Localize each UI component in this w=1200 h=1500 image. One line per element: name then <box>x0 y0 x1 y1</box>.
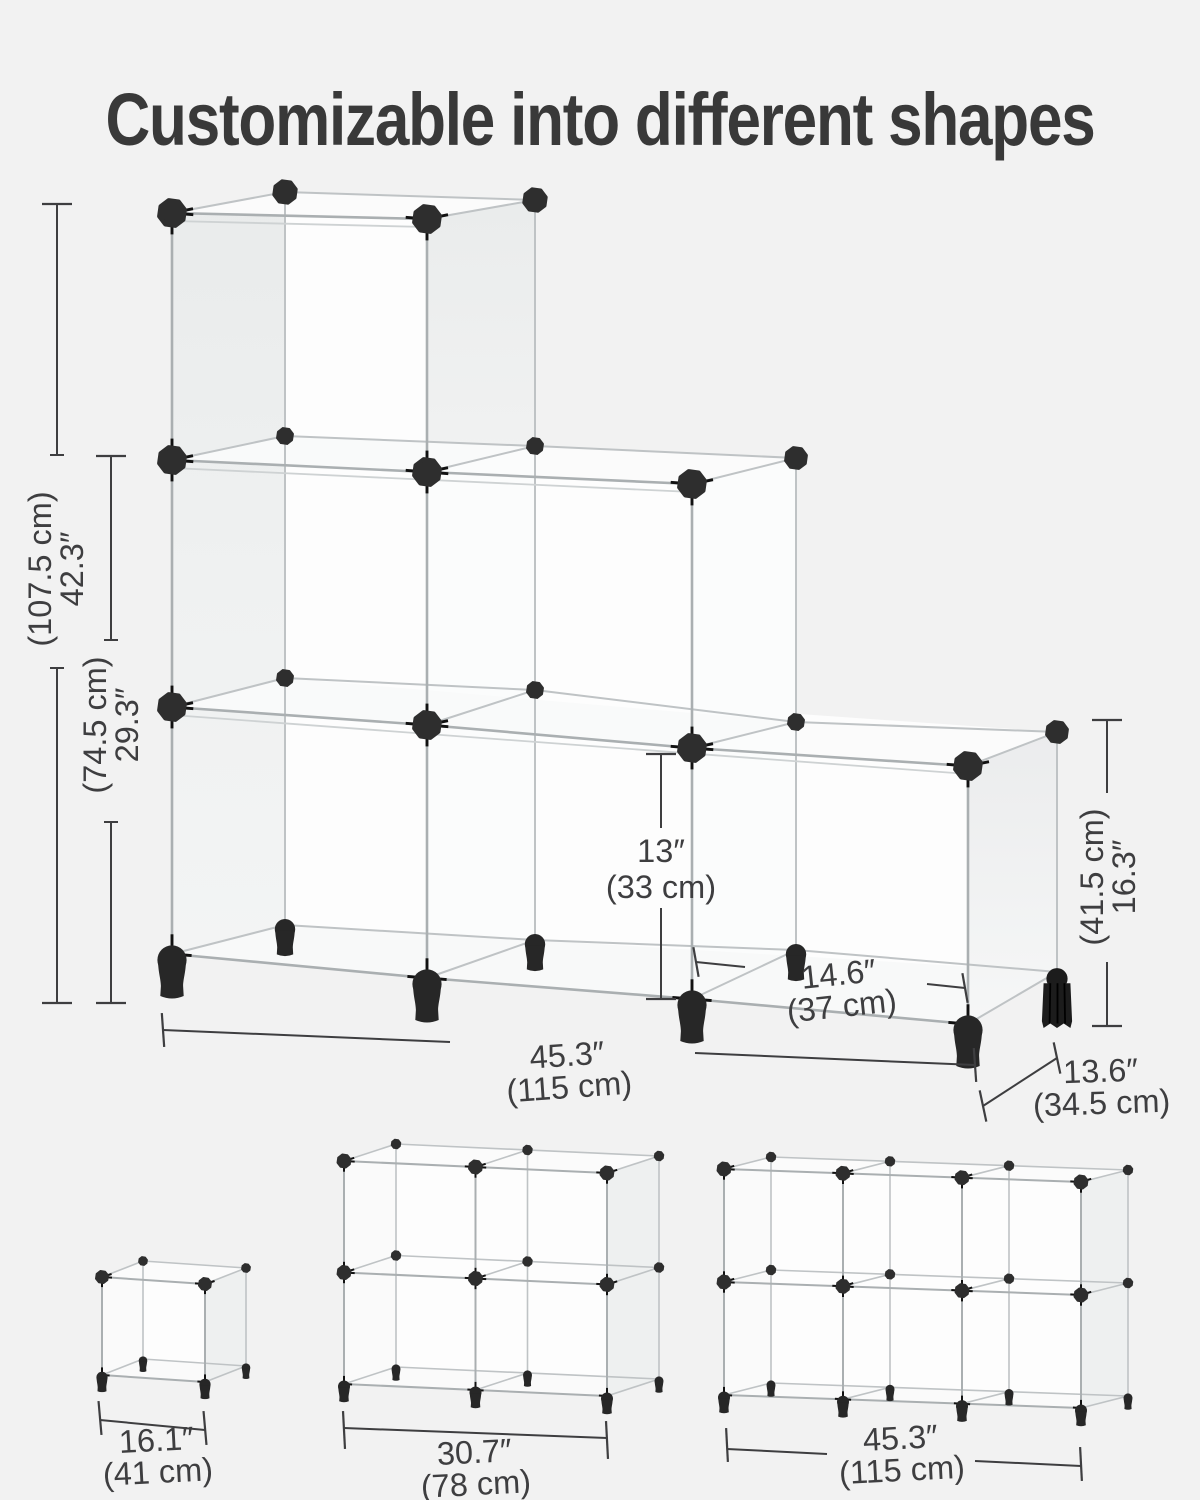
svg-text:(34.5 cm): (34.5 cm) <box>1032 1083 1170 1124</box>
svg-text:29.3″: 29.3″ <box>109 688 145 763</box>
svg-text:(41.5 cm): (41.5 cm) <box>1074 808 1110 945</box>
svg-text:16.3″: 16.3″ <box>1106 840 1142 915</box>
svg-text:42.3″: 42.3″ <box>54 532 90 607</box>
svg-text:(74.5 cm): (74.5 cm) <box>77 656 113 793</box>
svg-text:13″: 13″ <box>637 833 685 869</box>
svg-text:Customizable into different sh: Customizable into different shapes <box>105 78 1094 162</box>
svg-text:(107.5 cm): (107.5 cm) <box>22 491 58 646</box>
svg-text:(78 cm): (78 cm) <box>420 1463 532 1500</box>
svg-text:(41 cm): (41 cm) <box>102 1451 214 1493</box>
svg-text:(115 cm): (115 cm) <box>838 1449 966 1492</box>
svg-text:(33 cm): (33 cm) <box>606 869 716 905</box>
